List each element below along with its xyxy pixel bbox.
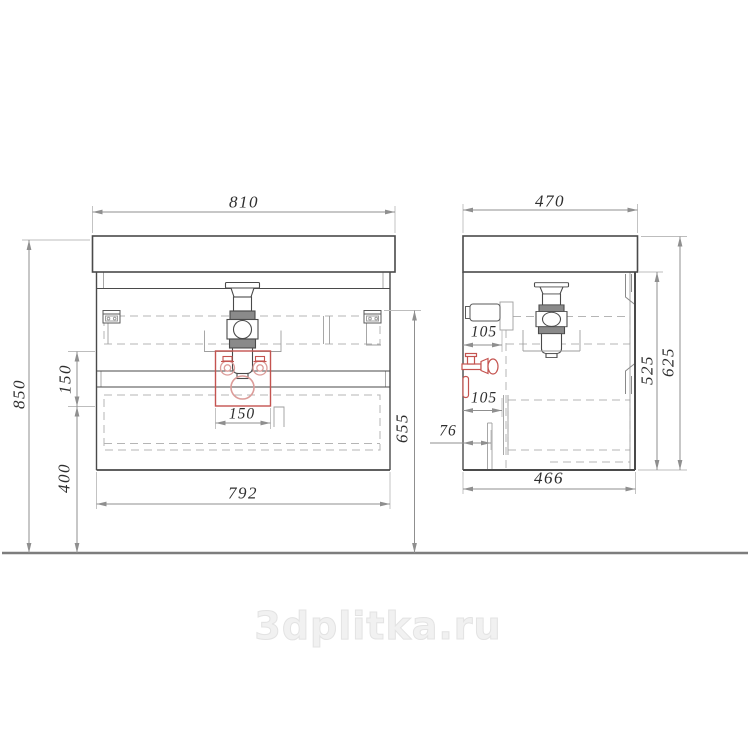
wall-bracket-right [364, 311, 381, 324]
dim-front-body-width: 792 [228, 485, 258, 502]
dim-front-cutout-width: 150 [229, 406, 255, 422]
dim-front-top-width: 810 [229, 194, 259, 211]
dim-side-overall-height: 625 [660, 347, 677, 377]
vanity-technical-drawing: 810 470 850 150 400 655 792 150 466 525 … [0, 0, 750, 750]
wall-bracket-left [103, 311, 120, 324]
watermark: 3dplitka.ru [254, 604, 501, 648]
dim-side-body-depth: 466 [534, 470, 564, 487]
dim-front-drawer-gap: 150 [57, 364, 74, 394]
dim-side-outlet-offset: 76 [439, 423, 457, 439]
dim-side-drain-offset-lower: 105 [471, 390, 497, 406]
dim-side-cabinet-height: 525 [639, 355, 656, 385]
siphon-side [535, 283, 569, 358]
dim-side-top-depth: 470 [535, 193, 565, 210]
drain-outlet-box [466, 304, 501, 321]
side-view-drawing [462, 236, 638, 470]
dimension-lines [22, 204, 687, 553]
dim-side-drain-offset-upper: 105 [471, 324, 497, 340]
dim-front-bracket-height: 655 [394, 413, 411, 443]
front-view-drawing [93, 236, 396, 470]
dim-front-overall-height: 850 [11, 379, 28, 409]
dim-front-floor-clearance: 400 [56, 463, 73, 493]
